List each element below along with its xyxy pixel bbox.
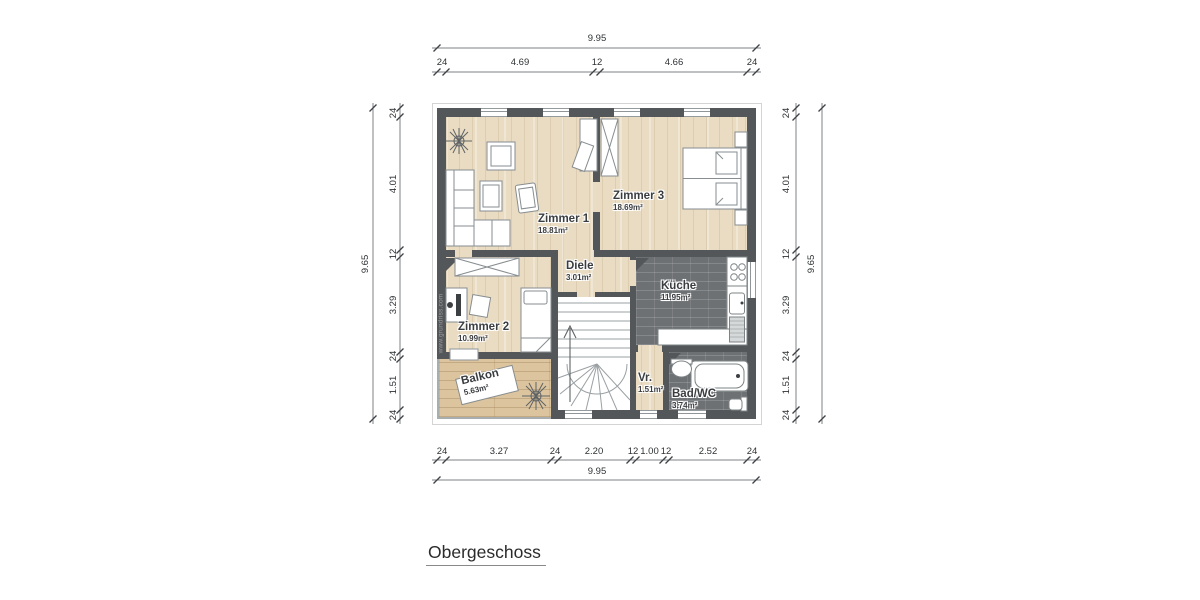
dim-top-overall: 9.95 bbox=[577, 33, 617, 45]
dim-left-seg3: 3.29 bbox=[388, 285, 400, 325]
room-area: 3.01m² bbox=[566, 273, 594, 282]
dim-left-overall: 9.65 bbox=[360, 244, 372, 284]
floorplan-canvas: Zimmer 1 18.81m² Zimmer 3 18.69m² Diele … bbox=[0, 0, 1200, 600]
dim-bottom-overall: 9.95 bbox=[577, 466, 617, 478]
dim-bottom-seg7: 2.52 bbox=[688, 446, 728, 458]
room-name: Zimmer 2 bbox=[458, 321, 509, 334]
dim-bottom-seg8: 24 bbox=[740, 446, 764, 458]
dim-top-seg1: 4.69 bbox=[500, 57, 540, 69]
room-label-vr: Vr. 1.51m² bbox=[638, 372, 663, 394]
room-name: Vr. bbox=[638, 372, 663, 385]
room-name: Diele bbox=[566, 260, 594, 273]
dim-left-seg6: 24 bbox=[388, 395, 400, 435]
page-title: Obergeschoss bbox=[426, 542, 546, 566]
room-name: Küche bbox=[661, 280, 696, 293]
room-label-badwc: Bad/WC 3.74m² bbox=[672, 388, 716, 410]
plant-balcony bbox=[522, 382, 550, 410]
dimension-lines bbox=[373, 48, 822, 480]
room-area: 18.69m² bbox=[613, 203, 664, 212]
room-label-zimmer1: Zimmer 1 18.81m² bbox=[538, 213, 589, 235]
dim-right-seg6: 24 bbox=[781, 395, 793, 435]
balcony-door bbox=[450, 349, 478, 360]
dim-left-seg0: 24 bbox=[388, 93, 400, 133]
room-area: 1.51m² bbox=[638, 385, 663, 394]
dim-right-seg1: 4.01 bbox=[781, 164, 793, 204]
room-label-zimmer2: Zimmer 2 10.99m² bbox=[458, 321, 509, 343]
watermark: www.grundriss.com bbox=[438, 292, 445, 356]
dim-top-seg0: 24 bbox=[430, 57, 454, 69]
dim-top-seg3: 4.66 bbox=[654, 57, 694, 69]
dim-bottom-seg3: 2.20 bbox=[574, 446, 614, 458]
dim-bottom-seg2: 24 bbox=[543, 446, 567, 458]
bed-zimmer3 bbox=[683, 132, 747, 225]
dim-left-seg1: 4.01 bbox=[388, 164, 400, 204]
dim-left-seg2: 12 bbox=[388, 234, 400, 274]
room-name: Bad/WC bbox=[672, 388, 716, 401]
wardrobe-zimmer3 bbox=[601, 119, 618, 176]
room-area: 18.81m² bbox=[538, 226, 589, 235]
room-label-diele: Diele 3.01m² bbox=[566, 260, 594, 282]
dim-top-seg2: 12 bbox=[585, 57, 609, 69]
staircase bbox=[558, 303, 630, 410]
room-name: Zimmer 3 bbox=[613, 190, 664, 203]
dim-right-seg2: 12 bbox=[781, 234, 793, 274]
dimension-ticks bbox=[370, 45, 826, 484]
room-label-kueche: Küche 11.95m² bbox=[661, 280, 696, 302]
dim-right-overall: 9.65 bbox=[806, 244, 818, 284]
plan-artwork bbox=[0, 0, 1200, 600]
dim-bottom-seg1: 3.27 bbox=[479, 446, 519, 458]
dim-right-seg0: 24 bbox=[781, 93, 793, 133]
dim-right-seg3: 3.29 bbox=[781, 285, 793, 325]
room-area: 11.95m² bbox=[661, 293, 696, 302]
dim-top-seg4: 24 bbox=[740, 57, 764, 69]
room-area: 10.99m² bbox=[458, 334, 509, 343]
room-name: Zimmer 1 bbox=[538, 213, 589, 226]
dim-bottom-seg6: 12 bbox=[655, 446, 677, 458]
stair-direction-arrow bbox=[564, 326, 576, 402]
plant-zimmer1 bbox=[446, 128, 472, 154]
dim-bottom-seg0: 24 bbox=[430, 446, 454, 458]
room-area: 3.74m² bbox=[672, 401, 716, 410]
room-label-zimmer3: Zimmer 3 18.69m² bbox=[613, 190, 664, 212]
